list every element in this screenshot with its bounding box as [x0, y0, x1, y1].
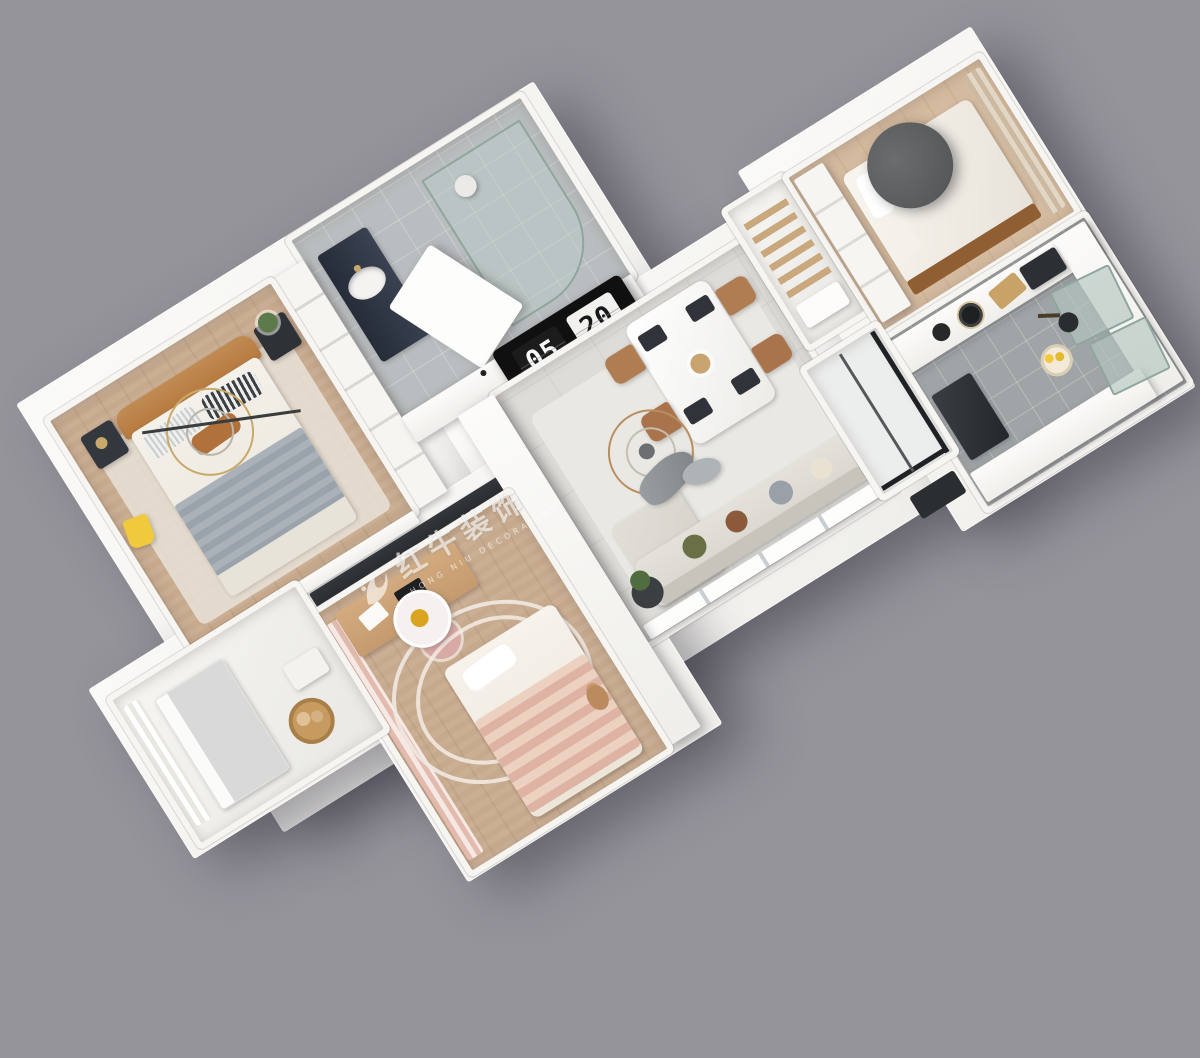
apartment-plan: 05 20 [0, 0, 1200, 1058]
floorplan-render: 05 20 [0, 0, 1200, 900]
frying-pan-handle [1038, 313, 1060, 318]
